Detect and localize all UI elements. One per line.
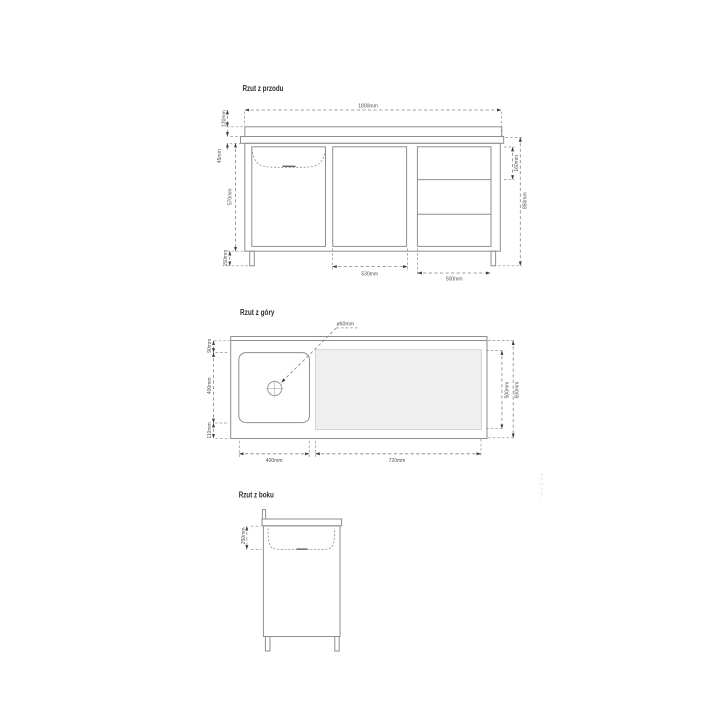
svg-text:110mm: 110mm	[207, 422, 213, 438]
svg-text:160mm: 160mm	[514, 155, 520, 172]
svg-text:Rzut z przodu: Rzut z przodu	[243, 83, 284, 93]
svg-text:130mm: 130mm	[222, 110, 228, 127]
svg-text:530mm: 530mm	[361, 272, 378, 278]
svg-text:250mm: 250mm	[241, 527, 247, 544]
svg-text:1800mm: 1800mm	[358, 103, 378, 109]
svg-text:ø60mm: ø60mm	[337, 322, 355, 328]
svg-text:Rzut z góry: Rzut z góry	[240, 307, 275, 317]
svg-text:400mm: 400mm	[266, 458, 283, 464]
svg-text:720mm: 720mm	[389, 458, 406, 464]
svg-text:90mm: 90mm	[207, 339, 213, 353]
svg-text:400mm: 400mm	[207, 377, 213, 394]
svg-text:570mm: 570mm	[227, 188, 233, 205]
svg-text:850mm: 850mm	[522, 192, 528, 209]
svg-text:150mm: 150mm	[223, 250, 229, 267]
svg-text:500mm: 500mm	[505, 382, 511, 399]
svg-text:500mm: 500mm	[446, 276, 463, 282]
svg-text:45mm: 45mm	[217, 149, 223, 163]
svg-text:600mm: 600mm	[515, 382, 521, 399]
svg-text:Rzut z boku: Rzut z boku	[239, 490, 274, 500]
